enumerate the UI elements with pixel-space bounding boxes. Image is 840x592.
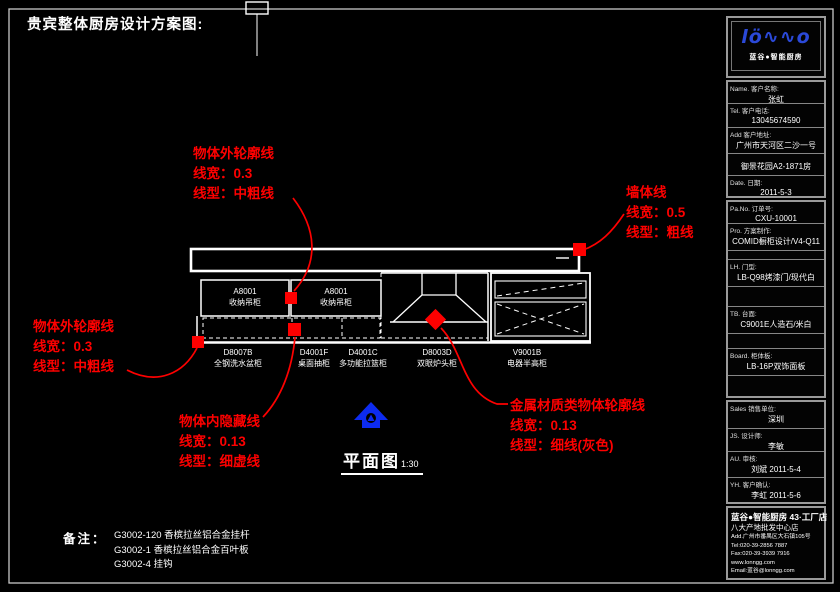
- field-customer-address: Add 客户地址: 广州市天河区二沙一号: [728, 128, 824, 154]
- annotation-line: 线型：粗线: [626, 223, 694, 243]
- field-label: Tel. 客户电话:: [728, 104, 824, 115]
- marker-wall-end: [573, 243, 586, 256]
- leader-wall: [583, 214, 624, 250]
- annotation-metal-outline: 金属材质类物体轮廓线 线宽：0.13 线型：细线(灰色): [510, 396, 645, 456]
- company-name: 蓝谷●智能厨房 43·工厂店: [731, 512, 821, 523]
- logo: lö∿∿o 蓝谷●智能厨房: [731, 21, 821, 71]
- annotation-object-outline-left: 物体外轮廓线 线宽：0.3 线型：中粗线: [33, 317, 114, 377]
- field-value: LB-Q98烤漆门/现代白: [728, 272, 824, 283]
- base-cabinet-label: D8003D 双眼炉头柜: [389, 347, 485, 369]
- upper-cabinet-label: A8001 收纳吊柜: [200, 286, 290, 308]
- note-item: G3002-120 香槟拉丝铝合金挂杆: [114, 529, 250, 544]
- field-label: Pro. 方案制作:: [728, 224, 824, 235]
- field-label: Pa.No. 订单号:: [728, 202, 824, 213]
- plan-linework: [0, 0, 840, 592]
- titleblock-logo-box: lö∿∿o 蓝谷●智能厨房: [726, 16, 826, 78]
- field-value: 御景花园A2-1871房: [728, 161, 824, 172]
- leader-top-outline: [293, 198, 312, 291]
- titleblock-customer: Name. 客户名称: 张虹 Tel. 客户电话: 13045674590 Ad…: [726, 80, 826, 198]
- field-door-style: LH. 门型: LB-Q98烤漆门/现代白: [728, 260, 824, 287]
- field-value: 刘斌 2011-5-4: [728, 464, 824, 475]
- annotation-wall-line: 墙体线 线宽：0.5 线型：粗线: [626, 183, 694, 243]
- field-countertop: TB. 台面: C9001E人造石/米白: [728, 307, 824, 334]
- field-label: AU. 审核:: [728, 452, 824, 463]
- field-value: 13045674590: [728, 116, 824, 125]
- cabinet-name: 收纳吊柜: [291, 297, 381, 308]
- field-label: Name. 客户名称:: [728, 82, 824, 93]
- company-slogan: 八大产地批发中心店: [731, 523, 821, 533]
- titleblock-order: Pa.No. 订单号: CXU-10001 Pro. 方案制作: COMID橱柜…: [726, 200, 826, 398]
- field-customer-name: Name. 客户名称: 张虹: [728, 82, 824, 104]
- cabinet-code: V9001B: [479, 347, 575, 358]
- field-label: LH. 门型:: [728, 260, 824, 271]
- annotation-line: 线型：细虚线: [179, 452, 260, 472]
- stamp-box: [246, 2, 268, 14]
- leader-left-outline: [127, 348, 197, 377]
- note-item: G3002-4 挂钩: [114, 558, 250, 573]
- field-label: Date. 日期:: [728, 176, 824, 187]
- cabinet-code: D8003D: [389, 347, 485, 358]
- annotation-line: 线宽：0.3: [33, 337, 114, 357]
- field-label: Sales 销售单位:: [728, 402, 824, 413]
- marker-hood: [425, 309, 446, 330]
- field-carcass-board: Board. 柜体板: LB-16P双饰面板: [728, 349, 824, 376]
- annotation-line: 物体外轮廓线: [193, 144, 274, 164]
- field-sales-unit: Sales 销售单位: 深圳: [728, 402, 824, 429]
- field-estate: 御景花园A2-1871房: [728, 154, 824, 176]
- annotation-line: 线宽：0.13: [179, 432, 260, 452]
- company-address: Add.广州市番禺区大石镇105号: [731, 533, 821, 542]
- annotation-hidden-line: 物体内隐藏线 线宽：0.13 线型：细虚线: [179, 412, 260, 472]
- field-value: 广州市天河区二沙一号: [728, 140, 824, 151]
- company-email: Email:蓝谷@lonngg.com: [731, 567, 821, 576]
- annotation-line: 线型：细线(灰色): [510, 436, 645, 456]
- note-item: G3002-1 香槟拉丝铝合金百叶板: [114, 544, 250, 559]
- field-value: 李敏: [728, 441, 824, 452]
- logo-subtitle: 蓝谷●智能厨房: [732, 52, 820, 62]
- field-software: Pro. 方案制作: COMID橱柜设计/V4-Q11: [728, 224, 824, 251]
- wall-band: [191, 249, 579, 271]
- notes-heading: 备注：: [63, 528, 107, 547]
- range-hood: [381, 273, 488, 341]
- annotation-object-outline-top: 物体外轮廓线 线宽：0.3 线型：中粗线: [193, 144, 274, 204]
- field-value: 2011-5-3: [728, 188, 824, 197]
- field-spacer: [728, 251, 824, 260]
- company-fax: Fax:020-39-3939 7916: [731, 550, 821, 559]
- field-spacer: [728, 334, 824, 349]
- field-label: JS. 设计师:: [728, 429, 824, 440]
- field-value: 张虹: [728, 94, 824, 104]
- annotation-line: 线型：中粗线: [33, 357, 114, 377]
- view-name: 平面图: [343, 452, 400, 471]
- company-info: 蓝谷●智能厨房 43·工厂店 八大产地批发中心店 Add.广州市番禺区大石镇10…: [728, 508, 824, 580]
- cabinet-name: 电器半高柜: [479, 358, 575, 369]
- field-designer: JS. 设计师: 李敏: [728, 429, 824, 452]
- titleblock-signoff: Sales 销售单位: 深圳 JS. 设计师: 李敏 AU. 审核: 刘斌 20…: [726, 400, 826, 504]
- field-value: 李虹 2011-5-6: [728, 490, 824, 501]
- annotation-line: 物体内隐藏线: [179, 412, 260, 432]
- annotation-line: 线宽：0.13: [510, 416, 645, 436]
- sheet-title: 贵宾整体厨房设计方案图:: [27, 13, 203, 34]
- field-value: LB-16P双饰面板: [728, 361, 824, 372]
- annotation-line: 物体外轮廓线: [33, 317, 114, 337]
- annotation-line: 线宽：0.5: [626, 203, 694, 223]
- upper-cabinet-label: A8001 收纳吊柜: [291, 286, 381, 308]
- notes-list: G3002-120 香槟拉丝铝合金挂杆 G3002-1 香槟拉丝铝合金百叶板 G…: [114, 529, 250, 573]
- base-cabinet-label: V9001B 电器半高柜: [479, 347, 575, 369]
- north-symbol: [354, 402, 388, 428]
- field-label: Add 客户地址:: [728, 128, 824, 139]
- titleblock-company: 蓝谷●智能厨房 43·工厂店 八大产地批发中心店 Add.广州市番禺区大石镇10…: [726, 506, 826, 580]
- field-label: YH. 客户确认:: [728, 478, 824, 489]
- field-spacer: [728, 287, 824, 307]
- cabinet-name: 双眼炉头柜: [389, 358, 485, 369]
- field-order-no: Pa.No. 订单号: CXU-10001: [728, 202, 824, 224]
- logo-wordmark: lö∿∿o: [732, 22, 820, 52]
- cabinet-code: A8001: [291, 286, 381, 297]
- cabinet-name: 收纳吊柜: [200, 297, 290, 308]
- view-scale: 1:30: [401, 459, 419, 469]
- company-web: www.lonngg.com: [731, 559, 821, 568]
- annotation-line: 线型：中粗线: [193, 184, 274, 204]
- marker-base-divider: [288, 323, 301, 336]
- field-value: CXU-10001: [728, 214, 824, 223]
- cabinet-code: A8001: [200, 286, 290, 297]
- field-value: 深圳: [728, 414, 824, 425]
- tall-cabinet: [491, 273, 590, 341]
- annotation-line: 金属材质类物体轮廓线: [510, 396, 645, 416]
- annotation-line: 线宽：0.3: [193, 164, 274, 184]
- view-tag: 平面图1:30: [341, 447, 423, 475]
- cad-sheet: 贵宾整体厨房设计方案图: 物体外轮廓线 线宽：0.3 线型：中粗线 墙体线 线宽…: [0, 0, 840, 592]
- annotation-line: 墙体线: [626, 183, 694, 203]
- field-spacer: [728, 376, 824, 396]
- field-date: Date. 日期: 2011-5-3: [728, 176, 824, 200]
- field-customer-confirm: YH. 客户确认: 李虹 2011-5-6: [728, 478, 824, 504]
- field-customer-tel: Tel. 客户电话: 13045674590: [728, 104, 824, 128]
- company-tel: Tel:020-39-2856 7887: [731, 542, 821, 551]
- field-label: TB. 台面:: [728, 307, 824, 318]
- field-value: COMID橱柜设计/V4-Q11: [728, 236, 824, 247]
- field-audit: AU. 审核: 刘斌 2011-5-4: [728, 452, 824, 478]
- field-label: Board. 柜体板:: [728, 349, 824, 360]
- field-value: C9001E人造石/米白: [728, 319, 824, 330]
